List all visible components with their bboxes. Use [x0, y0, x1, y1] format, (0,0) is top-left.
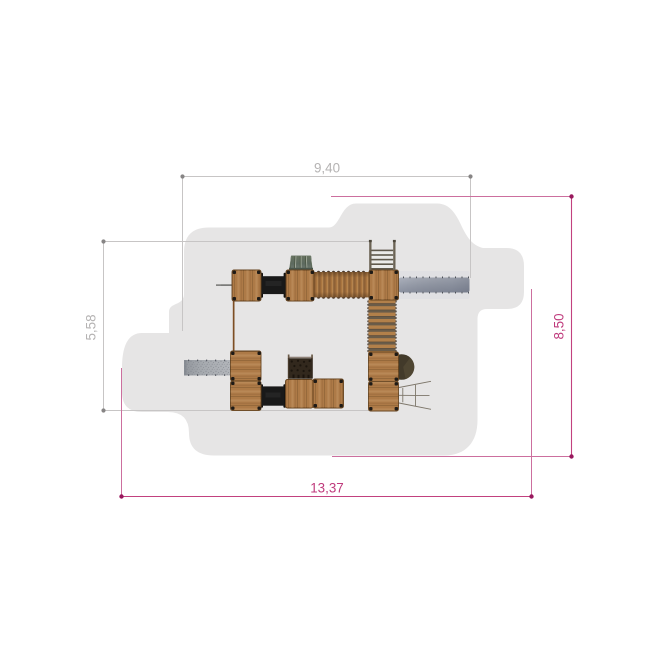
svg-text:9,40: 9,40 [314, 161, 340, 176]
svg-text:13,37: 13,37 [310, 481, 344, 496]
svg-text:8,50: 8,50 [552, 313, 567, 339]
svg-text:5,58: 5,58 [84, 314, 99, 340]
